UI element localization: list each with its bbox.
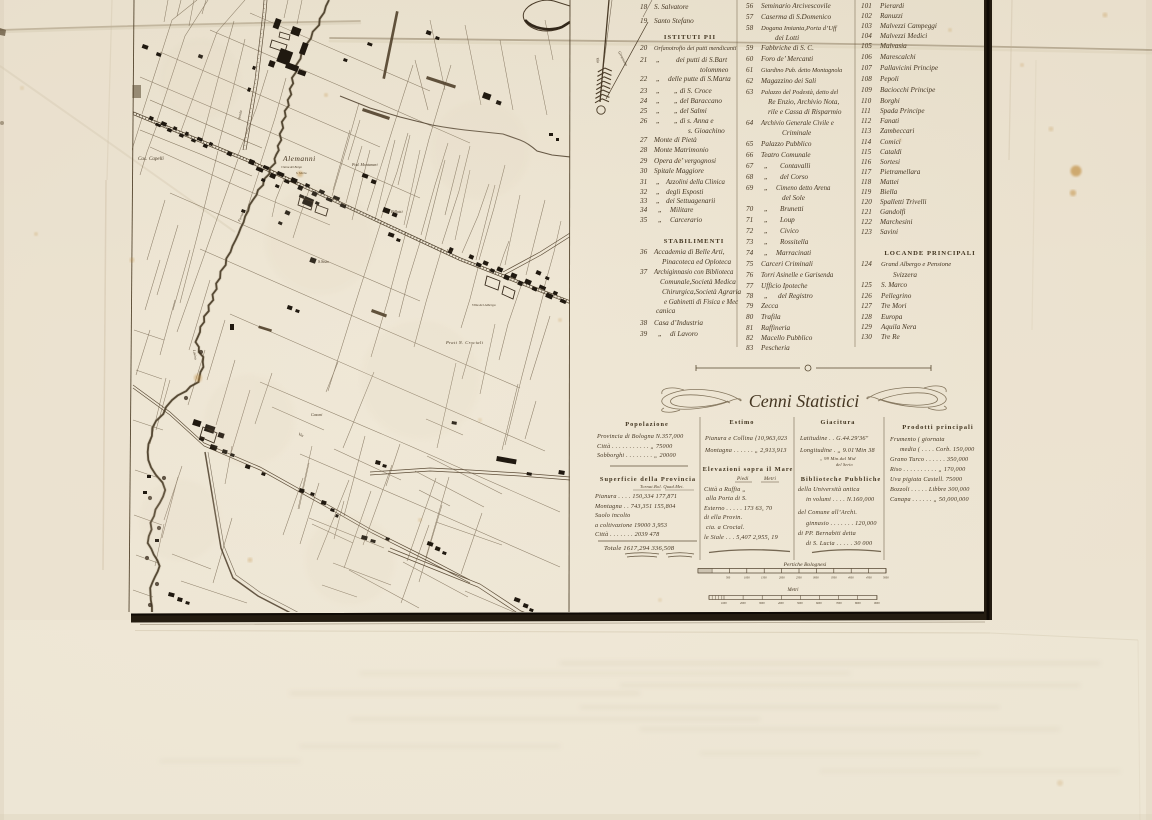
svg-text:rile e Cassa di Risparmio: rile e Cassa di Risparmio — [768, 108, 842, 116]
svg-text:Pianura . . . . 150,334 177,: Pianura . . . . 150,334 177,871 — [594, 493, 677, 500]
svg-text:Orfanotrofio dei putti mendica: Orfanotrofio dei putti mendicanti — [654, 45, 737, 52]
svg-text:„ del Salmi: „ del Salmi — [674, 107, 707, 115]
svg-text:Pietramellara: Pietramellara — [879, 168, 921, 176]
svg-text:21: 21 — [640, 56, 647, 64]
svg-text:Savini: Savini — [880, 228, 898, 236]
svg-text:Fanati: Fanati — [879, 117, 899, 125]
svg-text:60: 60 — [746, 55, 754, 63]
svg-text:Città . . . . . . . 2039: Città . . . . . . . 2039 478 — [595, 531, 660, 538]
svg-text:STABILIMENTI: STABILIMENTI — [664, 238, 725, 245]
svg-text:6000: 6000 — [816, 602, 822, 605]
svg-text:Tre Mori: Tre Mori — [881, 302, 907, 310]
svg-text:119: 119 — [861, 188, 872, 196]
svg-text:Trafila: Trafila — [761, 313, 781, 321]
svg-text:18: 18 — [640, 3, 648, 11]
svg-text:Marracinati: Marracinati — [775, 249, 811, 257]
svg-text:„ di s. Anna e: „ di s. Anna e — [674, 117, 714, 125]
svg-text:Pinacoteca ed Oploteca: Pinacoteca ed Oploteca — [661, 258, 731, 266]
svg-text:Cataldi: Cataldi — [880, 148, 902, 156]
svg-text:Cimeno detto Arena: Cimeno detto Arena — [776, 185, 831, 192]
svg-text:Bozzoli . . . . . Libbre 300,0: Bozzoli . . . . . Libbre 300,000 — [890, 486, 970, 493]
svg-text:ISTITUTI PII: ISTITUTI PII — [664, 34, 716, 41]
svg-text:68: 68 — [746, 173, 754, 181]
svg-text:127: 127 — [861, 302, 872, 310]
svg-text:4500: 4500 — [866, 577, 872, 580]
svg-text:Suolo incolto: Suolo incolto — [595, 512, 630, 519]
svg-text:129: 129 — [861, 323, 872, 331]
svg-text:Gandolfi: Gandolfi — [880, 208, 906, 216]
svg-text:S.Sisto: S.Sisto — [318, 259, 329, 264]
svg-text:22: 22 — [640, 75, 648, 83]
svg-text:27: 27 — [640, 136, 648, 144]
svg-text:Archivio Generale Civile e: Archivio Generale Civile e — [760, 120, 834, 127]
svg-text:Dogana Imianta,Porta d’Uff: Dogana Imianta,Porta d’Uff — [760, 25, 838, 32]
svg-text:„: „ — [764, 162, 768, 170]
svg-text:Borghi: Borghi — [880, 97, 900, 105]
svg-text:Billotti: Billotti — [391, 209, 403, 214]
svg-text:Pescheria: Pescheria — [760, 344, 790, 352]
svg-text:Latitudine . . G.44.29′36″: Latitudine . . G.44.29′36″ — [799, 435, 869, 442]
svg-text:Totale 1617,294 336,508: Totale 1617,294 336,508 — [604, 545, 675, 552]
svg-text:Pierardi: Pierardi — [879, 2, 904, 10]
svg-text:4000: 4000 — [848, 577, 854, 580]
svg-text:Palazzo del Podestà, detto del: Palazzo del Podestà, detto del — [760, 89, 838, 96]
svg-text:122: 122 — [861, 218, 872, 226]
svg-text:9000: 9000 — [874, 602, 880, 605]
svg-text:„: „ — [764, 249, 768, 257]
svg-text:LOCANDE PRINCIPALI: LOCANDE PRINCIPALI — [884, 250, 975, 257]
svg-text:4000: 4000 — [778, 602, 784, 605]
svg-text:35: 35 — [639, 216, 648, 224]
svg-text:117: 117 — [861, 168, 872, 176]
svg-text:Grand Albergo e Pensione: Grand Albergo e Pensione — [881, 261, 951, 268]
svg-text:Metri: Metri — [763, 477, 777, 482]
svg-text:Riso . . . . . . . . . . „ 17: Riso . . . . . . . . . . „ 170,000 — [889, 466, 966, 473]
svg-text:Provincia di Bologna N.357,000: Provincia di Bologna N.357,000 — [596, 433, 684, 440]
svg-text:Torri Asinelle e Garisenda: Torri Asinelle e Garisenda — [761, 272, 834, 279]
svg-text:Pallavicini Principe: Pallavicini Principe — [879, 64, 939, 72]
svg-text:„: „ — [656, 97, 660, 105]
svg-text:124: 124 — [861, 260, 872, 268]
svg-text:Tornat.Bol. Quad.Met.: Tornat.Bol. Quad.Met. — [640, 484, 684, 489]
svg-text:Chirurgica,Società Agraria: Chirurgica,Società Agraria — [662, 288, 741, 296]
svg-text:Chiesa del Borgo: Chiesa del Borgo — [281, 165, 302, 169]
svg-text:Grano Turco . . . . . . 350,00: Grano Turco . . . . . . 350,000 — [890, 456, 969, 463]
svg-text:Zecca: Zecca — [761, 302, 779, 310]
svg-text:78: 78 — [746, 292, 754, 300]
svg-text:Casoni: Casoni — [311, 412, 322, 417]
svg-text:79: 79 — [746, 302, 754, 310]
svg-text:dei Settuagenarii: dei Settuagenarii — [666, 197, 715, 205]
svg-text:114: 114 — [861, 138, 872, 146]
svg-text:Canapa . . . . . . „ 50,000,00: Canapa . . . . . . „ 50,000,000 — [890, 496, 969, 503]
svg-text:Marchesini: Marchesini — [879, 218, 912, 226]
svg-text:77: 77 — [746, 282, 754, 290]
svg-text:tolommeo: tolommeo — [700, 66, 729, 74]
svg-text:dei Lotti: dei Lotti — [775, 34, 799, 42]
svg-text:59: 59 — [746, 44, 754, 52]
svg-text:Via: Via — [595, 57, 601, 63]
svg-text:118: 118 — [861, 178, 872, 186]
svg-text:delle putte di S.Marta: delle putte di S.Marta — [668, 75, 731, 83]
svg-text:75: 75 — [746, 260, 754, 268]
svg-text:Santo Stefano: Santo Stefano — [654, 17, 694, 25]
svg-text:Ufficio Ipoteche: Ufficio Ipoteche — [761, 282, 808, 290]
svg-text:7000: 7000 — [836, 602, 842, 605]
svg-text:Teatro Comunale: Teatro Comunale — [761, 151, 811, 159]
svg-text:24: 24 — [640, 97, 648, 105]
svg-text:104: 104 — [861, 32, 872, 40]
svg-text:80: 80 — [746, 313, 754, 321]
svg-text:Archiginnasio con Biblioteca: Archiginnasio con Biblioteca — [653, 269, 734, 276]
svg-text:Sobborghi . . . . . . . . „ 2: Sobborghi . . . . . . . . „ 20000 — [597, 452, 677, 459]
svg-text:cia. a Crocial.: cia. a Crocial. — [706, 524, 745, 531]
svg-text:Accademia di Belle Arti,: Accademia di Belle Arti, — [653, 248, 725, 256]
svg-text:82: 82 — [746, 334, 754, 342]
svg-text:„: „ — [658, 206, 662, 214]
svg-text:Frumento ( giornata: Frumento ( giornata — [889, 436, 945, 443]
svg-text:36: 36 — [639, 248, 648, 256]
svg-text:115: 115 — [861, 148, 872, 156]
svg-text:57: 57 — [746, 13, 754, 21]
svg-text:130: 130 — [861, 333, 872, 341]
svg-text:103: 103 — [861, 22, 872, 30]
svg-text:1500: 1500 — [761, 577, 767, 580]
svg-text:Macello Pubblico: Macello Pubblico — [760, 334, 813, 342]
svg-text:„: „ — [656, 87, 660, 95]
svg-text:30: 30 — [639, 167, 648, 175]
svg-text:37: 37 — [639, 268, 648, 276]
svg-text:„: „ — [656, 117, 660, 125]
svg-text:Prodotti principali: Prodotti principali — [902, 424, 973, 431]
svg-text:Pepoli: Pepoli — [879, 75, 899, 83]
svg-text:le Siale . . . 5,407 2,955, 19: le Siale . . . 5,407 2,955, 19 — [704, 534, 778, 541]
svg-text:2500: 2500 — [796, 577, 802, 580]
svg-text:Esterno . . . . . 173 63,: Esterno . . . . . 173 63, 70 — [703, 505, 773, 512]
svg-text:„: „ — [764, 238, 768, 246]
svg-text:alla Porta di S.: alla Porta di S. — [706, 495, 747, 502]
svg-text:„ del Baraccano: „ del Baraccano — [674, 97, 722, 105]
svg-text:71: 71 — [746, 216, 753, 224]
svg-text:Seminario Arcivescovile: Seminario Arcivescovile — [761, 2, 831, 10]
svg-text:Civico: Civico — [780, 227, 799, 235]
svg-text:74: 74 — [746, 249, 754, 257]
svg-text:33: 33 — [639, 197, 648, 205]
svg-text:Comunale,Società Medica: Comunale,Società Medica — [660, 278, 736, 286]
svg-text:73: 73 — [746, 238, 754, 246]
svg-text:Criminale: Criminale — [782, 129, 812, 137]
svg-text:63: 63 — [746, 88, 754, 96]
svg-text:Magazzino dei Sali: Magazzino dei Sali — [760, 77, 816, 85]
svg-text:„: „ — [656, 197, 660, 205]
svg-text:Giacitura: Giacitura — [821, 419, 856, 426]
svg-text:110: 110 — [861, 97, 872, 105]
svg-text:ginnasio . . . . . . . 120,000: ginnasio . . . . . . . 120,000 — [806, 520, 877, 527]
svg-text:113: 113 — [861, 127, 872, 135]
svg-text:121: 121 — [861, 208, 872, 216]
svg-text:e Gabinetti di Fisica e Mec: e Gabinetti di Fisica e Mec — [664, 299, 738, 306]
svg-text:Monte di Pietà: Monte di Pietà — [653, 136, 697, 144]
svg-text:di ella Provin.: di ella Provin. — [704, 514, 742, 521]
svg-text:del Serio: del Serio — [836, 462, 853, 467]
svg-text:Zambeccari: Zambeccari — [880, 127, 914, 135]
svg-text:Brunetti: Brunetti — [780, 205, 804, 213]
svg-text:Popolazione: Popolazione — [625, 421, 669, 428]
svg-text:Pod. Montanari: Pod. Montanari — [351, 162, 378, 167]
svg-text:5000: 5000 — [883, 577, 889, 580]
svg-text:3500: 3500 — [831, 577, 837, 580]
svg-text:26: 26 — [640, 117, 648, 125]
svg-text:Biblioteche Pubbliche: Biblioteche Pubbliche — [801, 476, 881, 483]
svg-text:„: „ — [656, 75, 660, 83]
svg-text:111: 111 — [861, 107, 871, 115]
svg-text:della Università antica: della Università antica — [798, 486, 860, 493]
svg-text:Malvasia: Malvasia — [879, 42, 907, 50]
svg-text:„: „ — [764, 173, 768, 181]
svg-text:107: 107 — [861, 64, 872, 72]
svg-text:25: 25 — [640, 107, 648, 115]
svg-text:Svizzera: Svizzera — [893, 271, 917, 279]
svg-text:Carcerario: Carcerario — [670, 216, 702, 224]
svg-text:Pellegrino: Pellegrino — [880, 292, 912, 300]
svg-text:Cas.Capelli: Cas.Capelli — [138, 157, 164, 162]
svg-text:media ( . . . . Corb. 150,000: media ( . . . . Corb. 150,000 — [900, 446, 975, 453]
svg-text:„: „ — [656, 188, 660, 196]
svg-text:Foro de’ Mercanti: Foro de’ Mercanti — [760, 55, 813, 63]
svg-text:Tre Re: Tre Re — [881, 333, 901, 341]
svg-text:„: „ — [658, 216, 662, 224]
svg-text:Superficie della Provincia: Superficie della Provincia — [600, 476, 696, 483]
svg-text:20: 20 — [640, 44, 648, 52]
svg-text:67: 67 — [746, 162, 754, 170]
svg-text:Elevazioni sopra il Mare: Elevazioni sopra il Mare — [703, 466, 794, 473]
svg-text:69: 69 — [746, 184, 754, 192]
svg-text:„: „ — [656, 107, 660, 115]
svg-text:66: 66 — [746, 151, 754, 159]
svg-text:3000: 3000 — [813, 577, 819, 580]
svg-text:Contavalli: Contavalli — [780, 162, 810, 170]
svg-text:Longitudine . „ 9.01′Min 38: Longitudine . „ 9.01′Min 38 — [799, 447, 876, 454]
svg-text:Re Enzio, Archivio Nota,: Re Enzio, Archivio Nota, — [767, 98, 839, 106]
svg-text:29: 29 — [640, 157, 648, 165]
svg-text:Ranuzzi: Ranuzzi — [879, 12, 903, 20]
svg-text:di Lavoro: di Lavoro — [670, 330, 698, 338]
svg-text:5000: 5000 — [797, 602, 803, 605]
svg-text:„: „ — [764, 292, 768, 300]
svg-text:19: 19 — [640, 17, 648, 25]
svg-text:Europa: Europa — [880, 313, 903, 321]
svg-text:3000: 3000 — [759, 602, 765, 605]
svg-text:56: 56 — [746, 2, 754, 10]
svg-text:Monte Matrimonio: Monte Matrimonio — [653, 146, 709, 154]
svg-text:70: 70 — [746, 205, 754, 213]
svg-text:Villa del Albergo: Villa del Albergo — [472, 303, 496, 307]
svg-text:Montagna . . . . . . „ 2,913,: Montagna . . . . . . „ 2,913,913 — [704, 447, 787, 454]
svg-text:Palazzo Pubblico: Palazzo Pubblico — [760, 140, 812, 148]
svg-text:Cenni Statistici: Cenni Statistici — [749, 391, 860, 411]
svg-text:di PP. Bernabiti detta: di PP. Bernabiti detta — [798, 530, 856, 537]
svg-text:„: „ — [764, 227, 768, 235]
svg-text:38: 38 — [639, 319, 648, 327]
svg-text:106: 106 — [861, 53, 872, 61]
svg-text:112: 112 — [861, 117, 872, 125]
svg-text:109: 109 — [861, 86, 872, 94]
svg-text:Carceri Criminali: Carceri Criminali — [761, 260, 813, 268]
svg-text:del Corso: del Corso — [780, 173, 809, 181]
svg-text:del Registro: del Registro — [778, 292, 813, 300]
svg-text:Marescalchi: Marescalchi — [879, 53, 916, 61]
svg-text:Mattei: Mattei — [879, 178, 899, 186]
svg-text:101: 101 — [861, 2, 872, 10]
svg-text:Metri: Metri — [786, 588, 799, 593]
svg-text:„: „ — [658, 330, 662, 338]
svg-text:Montagna . . 743,351 155,804: Montagna . . 743,351 155,804 — [594, 503, 676, 510]
svg-text:Militare: Militare — [669, 206, 694, 214]
svg-text:Casa d’Industria: Casa d’Industria — [654, 319, 703, 327]
svg-text:„: „ — [764, 184, 768, 192]
svg-text:31: 31 — [639, 178, 647, 186]
svg-text:120: 120 — [861, 198, 872, 206]
svg-text:in volumi . . . . N.160,000: in volumi . . . . N.160,000 — [806, 496, 875, 503]
svg-text:108: 108 — [861, 75, 872, 83]
svg-text:1000: 1000 — [721, 602, 727, 605]
svg-text:di S. Lucia . . . . . 30 000: di S. Lucia . . . . . 30 000 — [806, 540, 873, 547]
svg-text:28: 28 — [640, 146, 648, 154]
svg-text:Spalletti Trivelli: Spalletti Trivelli — [880, 198, 927, 206]
svg-text:81: 81 — [746, 324, 753, 332]
svg-text:Pianura e Collina {10,963,023: Pianura e Collina {10,963,023 — [704, 435, 787, 442]
svg-text:76: 76 — [746, 271, 754, 279]
svg-text:61: 61 — [746, 66, 753, 74]
svg-text:Via: Via — [447, 249, 452, 253]
svg-text:32: 32 — [639, 188, 648, 196]
svg-text:Fabbriche di S. C.: Fabbriche di S. C. — [760, 44, 814, 52]
svg-text:Sortesi: Sortesi — [880, 158, 900, 166]
svg-text:Aquila Nera: Aquila Nera — [880, 323, 917, 331]
svg-text:Spada Principe: Spada Principe — [880, 107, 925, 115]
svg-text:Pertiche Bolognesi: Pertiche Bolognesi — [783, 562, 827, 568]
svg-text:s. Gioachino: s. Gioachino — [688, 127, 725, 135]
svg-text:102: 102 — [861, 12, 872, 20]
svg-text:Raffineria: Raffineria — [760, 324, 791, 332]
svg-text:Malvezzi Medici: Malvezzi Medici — [879, 32, 927, 40]
svg-text:83: 83 — [746, 344, 754, 352]
svg-text:Loup: Loup — [779, 216, 795, 224]
svg-text:Uva pigiata Castell. 75000: Uva pigiata Castell. 75000 — [890, 476, 963, 483]
svg-text:Azzolini della Clinica: Azzolini della Clinica — [665, 179, 726, 186]
svg-text:„ di S. Croce: „ di S. Croce — [674, 87, 712, 95]
svg-text:Giardino Pub. detto Montagnola: Giardino Pub. detto Montagnola — [761, 67, 842, 74]
svg-text:116: 116 — [861, 158, 872, 166]
svg-text:23: 23 — [640, 87, 648, 95]
svg-text:S. Marco: S. Marco — [881, 281, 907, 289]
svg-text:64: 64 — [746, 119, 754, 127]
svg-text:Baciocchi Principe: Baciocchi Principe — [880, 86, 936, 94]
svg-text:126: 126 — [861, 292, 872, 300]
svg-text:dei putti di S.Bart: dei putti di S.Bart — [676, 56, 728, 64]
svg-text:Malvezzi Campeggi: Malvezzi Campeggi — [879, 22, 937, 30]
svg-text:500: 500 — [726, 577, 731, 580]
svg-text:Piedi: Piedi — [736, 477, 749, 482]
svg-text:„: „ — [656, 178, 660, 186]
svg-text:Caserma di S.Domenico: Caserma di S.Domenico — [761, 13, 831, 21]
svg-text:128: 128 — [861, 313, 872, 321]
svg-text:Comici: Comici — [880, 138, 901, 146]
svg-text:105: 105 — [861, 42, 872, 50]
svg-text:„: „ — [764, 216, 768, 224]
svg-text:39: 39 — [639, 330, 648, 338]
svg-text:Spitale Maggiore: Spitale Maggiore — [654, 167, 705, 175]
svg-text:del Comune all’Archi.: del Comune all’Archi. — [798, 509, 857, 516]
svg-text:8000: 8000 — [855, 602, 861, 605]
svg-text:1000: 1000 — [744, 577, 750, 580]
svg-text:125: 125 — [861, 281, 872, 289]
svg-text:Biella: Biella — [880, 188, 898, 196]
svg-text:„: „ — [656, 56, 660, 64]
svg-text:Opera de’ vergognosi: Opera de’ vergognosi — [654, 157, 716, 165]
svg-text:2000: 2000 — [740, 602, 746, 605]
svg-text:62: 62 — [746, 77, 754, 85]
svg-text:S. Salvatore: S. Salvatore — [654, 3, 689, 11]
svg-text:Estimo: Estimo — [730, 419, 755, 426]
svg-text:2000: 2000 — [779, 577, 785, 580]
svg-text:Città . . . . . . . . . . . „: Città . . . . . . . . . . . „ 75000 — [597, 443, 673, 450]
svg-text:72: 72 — [746, 227, 754, 235]
svg-text:del Sole: del Sole — [782, 194, 806, 202]
svg-text:canica: canica — [656, 307, 676, 315]
svg-text:a coltivazione 19000 3,: a coltivazione 19000 3,953 — [595, 522, 667, 529]
svg-text:34: 34 — [639, 206, 648, 214]
svg-text:Rossitella: Rossitella — [779, 238, 809, 246]
svg-text:Città a Ruffia „: Città a Ruffia „ — [704, 486, 746, 493]
svg-text:degli Esposti: degli Esposti — [666, 188, 703, 196]
svg-text:123: 123 — [861, 228, 872, 236]
svg-text:65: 65 — [746, 140, 754, 148]
svg-text:Prati N. Crociali: Prati N. Crociali — [445, 340, 484, 345]
svg-text:58: 58 — [746, 24, 754, 32]
svg-text:Alemanni: Alemanni — [282, 154, 316, 163]
svg-text:„: „ — [764, 205, 768, 213]
